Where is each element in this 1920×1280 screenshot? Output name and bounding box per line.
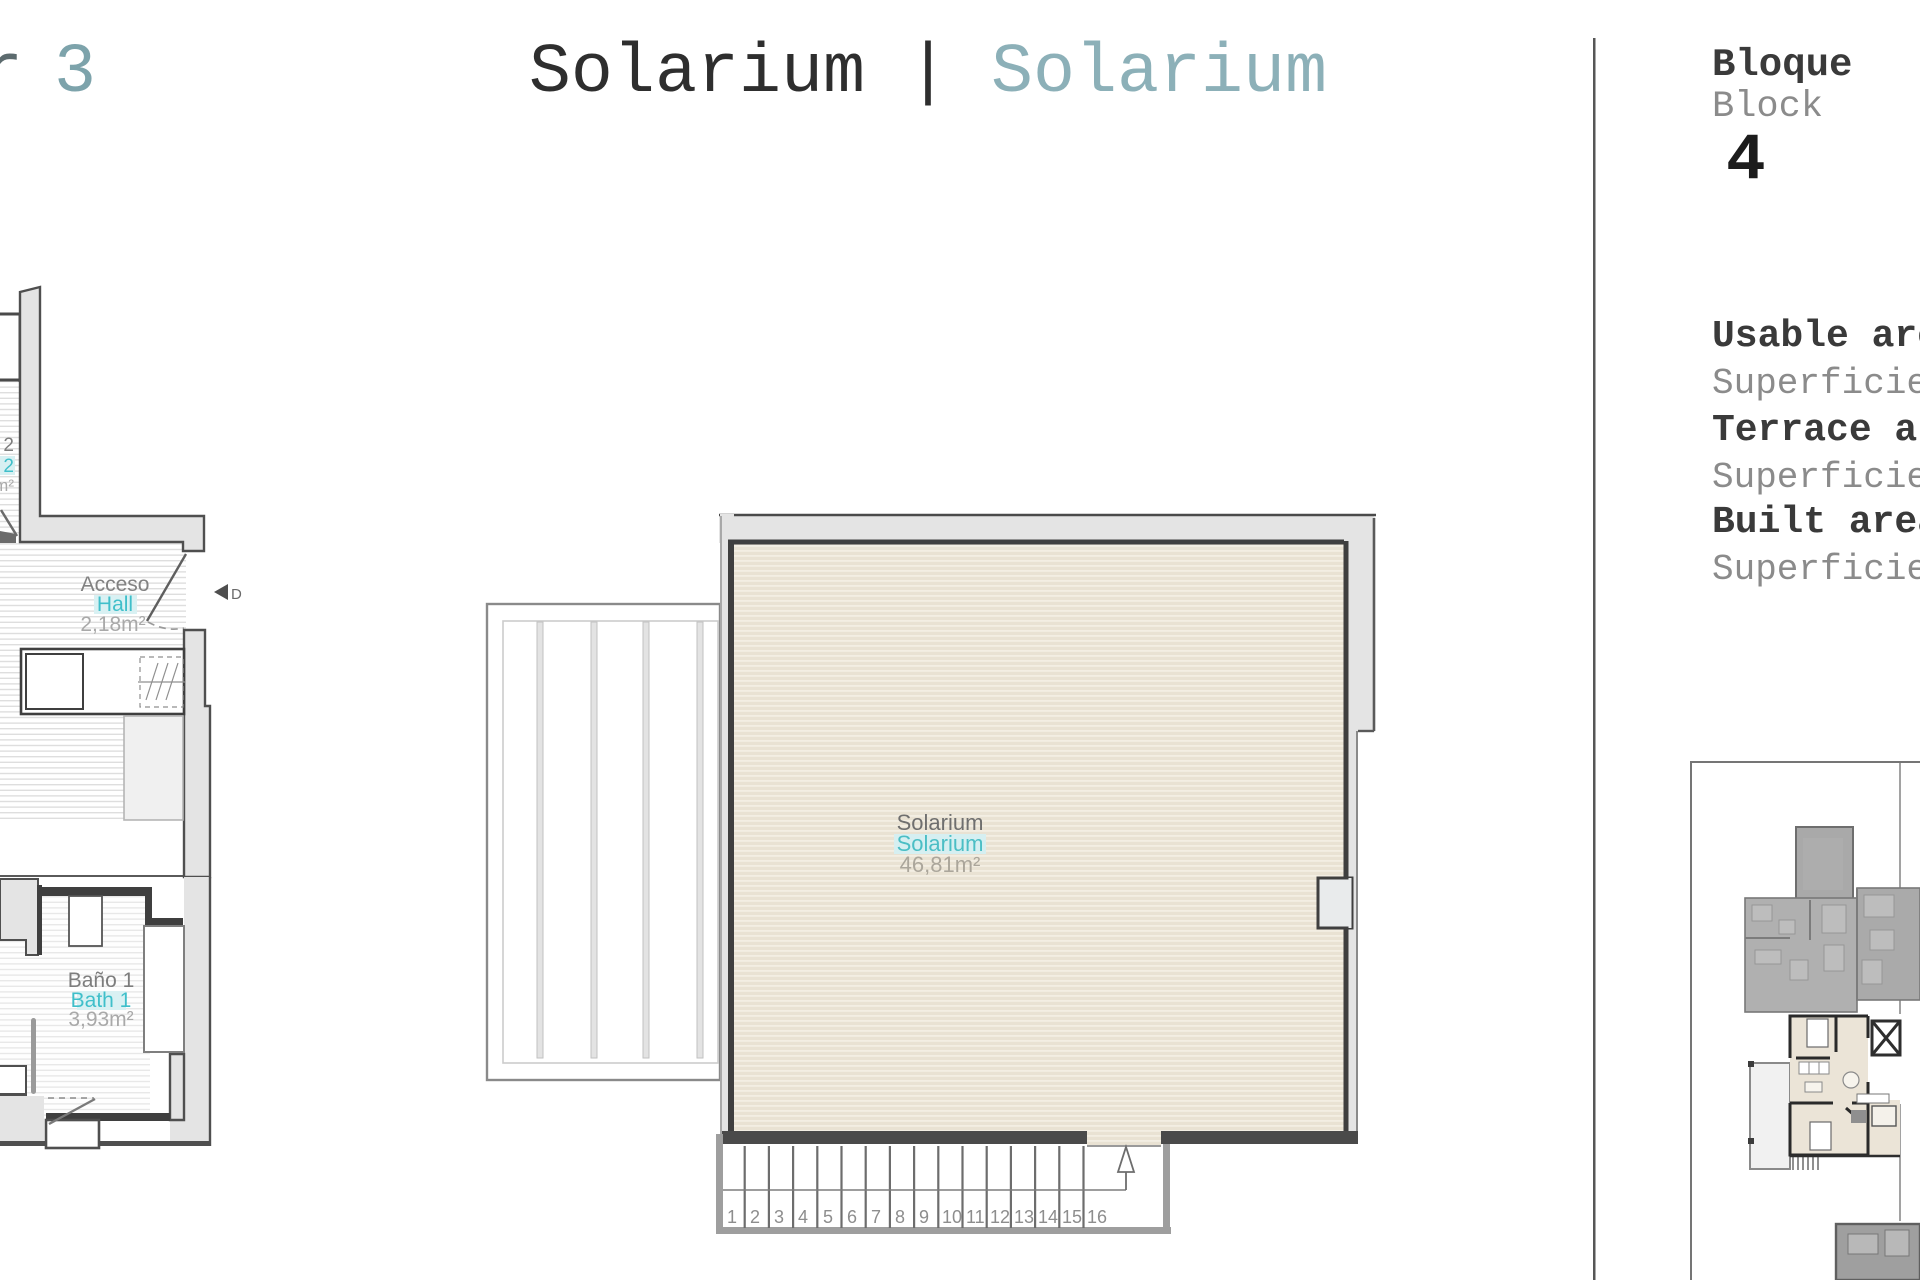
svg-text:4: 4 [1726, 123, 1766, 198]
svg-text:Built area: Built area [1712, 501, 1920, 544]
svg-text:2: 2 [750, 1207, 760, 1227]
svg-text:1: 1 [727, 1207, 737, 1227]
svg-text:12: 12 [990, 1207, 1010, 1227]
svg-text:10: 10 [942, 1207, 962, 1227]
svg-text:Terrace area: Terrace area [1712, 409, 1920, 452]
svg-text:5: 5 [823, 1207, 833, 1227]
svg-text:Block: Block [1712, 86, 1823, 128]
svg-text:15: 15 [1062, 1207, 1082, 1227]
svg-text:11: 11 [966, 1207, 985, 1227]
svg-text:Superficie co: Superficie co [1712, 549, 1920, 590]
svg-text:8: 8 [895, 1207, 905, 1227]
svg-text:2: 2 [3, 435, 14, 456]
svg-text:Solarium | Solarium: Solarium | Solarium [529, 34, 1327, 113]
svg-text:3: 3 [54, 34, 96, 113]
svg-text:13: 13 [1014, 1207, 1034, 1227]
svg-text:2,18m²: 2,18m² [80, 613, 145, 636]
svg-text:Usable area: Usable area [1712, 315, 1920, 358]
svg-text:m²: m² [0, 476, 14, 495]
svg-text:7: 7 [871, 1207, 881, 1227]
svg-text:Bloque: Bloque [1712, 43, 1852, 87]
svg-text:Superficie te: Superficie te [1712, 457, 1920, 498]
svg-text:2: 2 [3, 456, 14, 477]
svg-text:9: 9 [919, 1207, 929, 1227]
svg-text:D: D [231, 586, 242, 603]
svg-text:4: 4 [798, 1207, 808, 1227]
svg-text:Superficie út: Superficie út [1712, 363, 1920, 404]
svg-text:3,93m²: 3,93m² [68, 1008, 133, 1031]
svg-text:46,81m²: 46,81m² [900, 852, 981, 877]
svg-text:6: 6 [847, 1207, 857, 1227]
svg-text:16: 16 [1087, 1207, 1107, 1227]
svg-text:14: 14 [1038, 1207, 1058, 1227]
svg-text:3: 3 [774, 1207, 784, 1227]
svg-text:r: r [0, 34, 23, 113]
